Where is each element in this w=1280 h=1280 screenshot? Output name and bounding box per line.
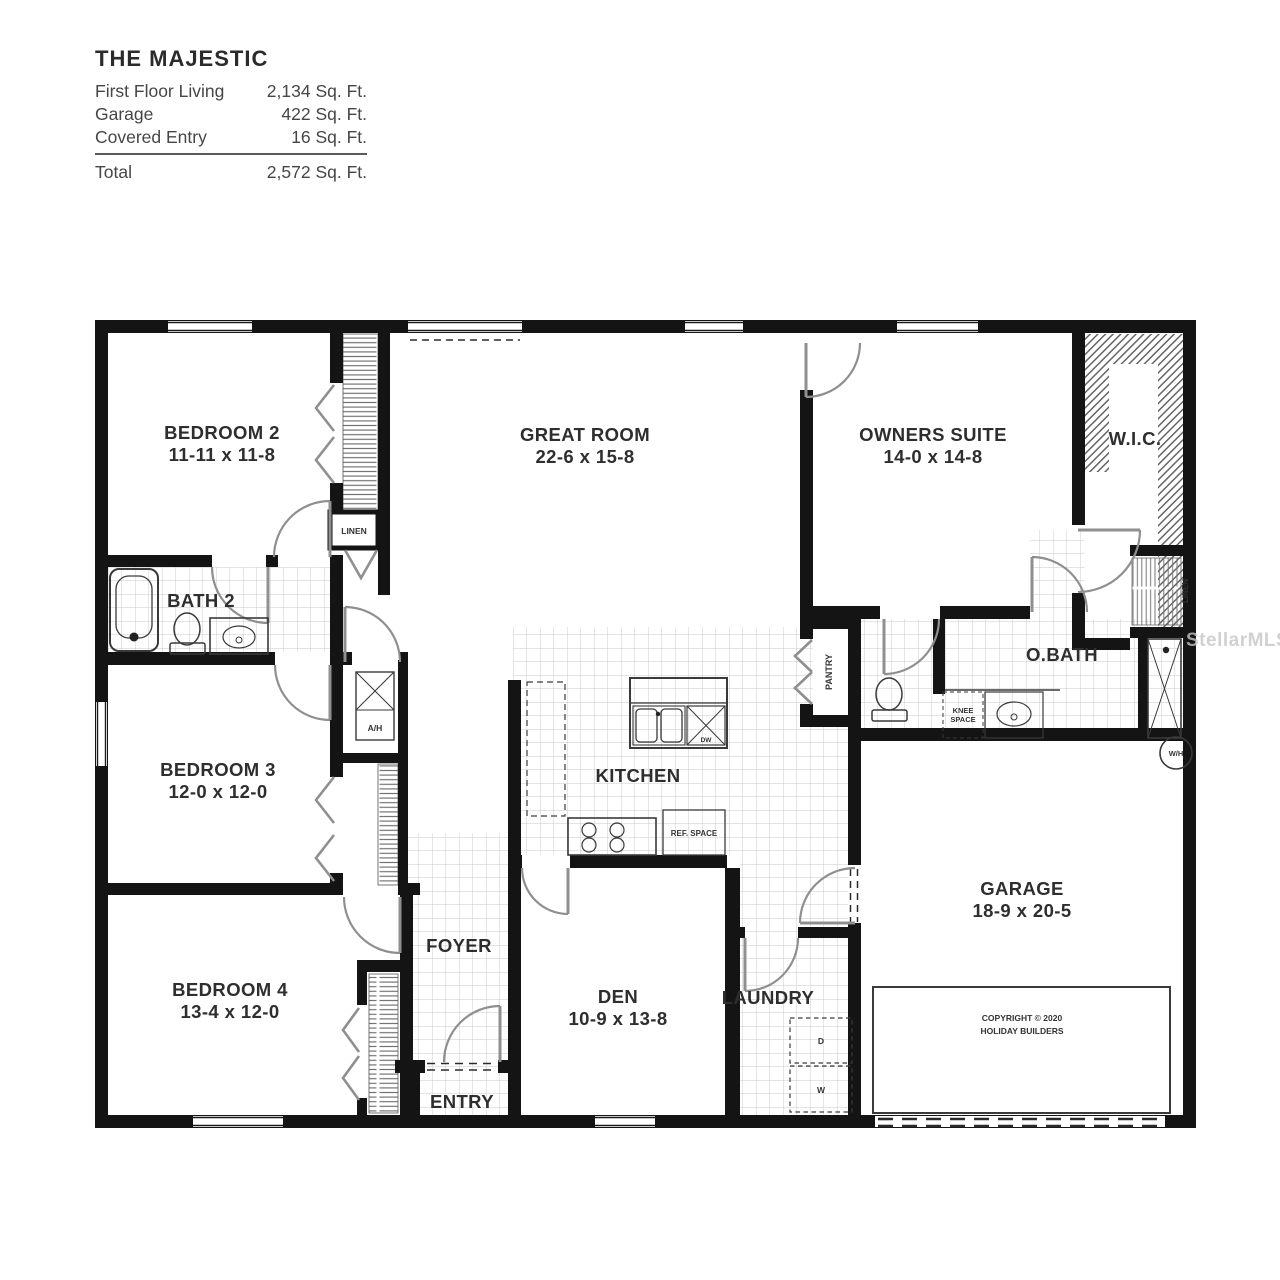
- linen-shelves: [1132, 558, 1181, 625]
- bedroom4-bifold: [343, 1008, 359, 1052]
- bedroom2-label: BEDROOM 2: [164, 422, 280, 443]
- knee-space-label: KNEE: [953, 706, 974, 715]
- foyer-label: FOYER: [426, 935, 492, 956]
- copyright-line2: HOLIDAY BUILDERS: [980, 1026, 1063, 1036]
- floor-plan: BEDROOM 2 11-11 x 11-8 GREAT ROOM 22-6 x…: [0, 0, 1280, 1280]
- entry-porch-edge: [420, 1123, 512, 1126]
- wic-shelf-left: [1085, 364, 1109, 472]
- bedroom4-closet: [369, 974, 398, 1113]
- window: [685, 321, 743, 332]
- great-room-dims: 22-6 x 15-8: [535, 446, 634, 467]
- kitchen-label: KITCHEN: [595, 765, 680, 786]
- bedroom2-closet: [343, 334, 378, 512]
- window: [96, 702, 107, 766]
- wic-shelf-top: [1085, 334, 1183, 364]
- den-door: [522, 868, 568, 914]
- ref-space-label: REF. SPACE: [671, 829, 718, 838]
- obath-label: O.BATH: [1026, 644, 1098, 665]
- bedroom4-label: BEDROOM 4: [172, 979, 288, 1000]
- owners-suite-dims: 14-0 x 14-8: [883, 446, 982, 467]
- bedroom4-door: [344, 897, 400, 953]
- window: [897, 321, 978, 332]
- garage-dims: 18-9 x 20-5: [972, 900, 1071, 921]
- bedroom2-dims: 11-11 x 11-8: [169, 444, 276, 465]
- bedroom2-bifold: [316, 437, 334, 483]
- knee-space-label: SPACE: [950, 715, 975, 724]
- owners-suite-label: OWNERS SUITE: [859, 424, 1007, 445]
- entry-label: ENTRY: [430, 1091, 494, 1112]
- great-room-label: GREAT ROOM: [520, 424, 650, 445]
- bedroom3-closet: [378, 764, 398, 885]
- watermark: StellarMLS: [1186, 630, 1280, 651]
- bedroom3-dims: 12-0 x 12-0: [168, 781, 267, 802]
- bedroom2-bifold: [316, 385, 334, 431]
- owners-suite-door: [806, 343, 860, 397]
- bath2-label: BATH 2: [167, 590, 235, 611]
- laundry-label: LAUNDRY: [722, 987, 815, 1008]
- bedroom4-bifold: [343, 1056, 359, 1100]
- washer-label: W: [817, 1085, 826, 1095]
- pantry-label: PANTRY: [824, 654, 834, 690]
- bedroom3-label: BEDROOM 3: [160, 759, 276, 780]
- window: [193, 1116, 283, 1127]
- linen-right-label: LINEN: [1181, 579, 1190, 603]
- linen-label: LINEN: [341, 526, 367, 536]
- garage-door: [875, 1116, 1165, 1127]
- garage-hall-door-dashed: [851, 869, 858, 922]
- bedroom2-door: [274, 501, 330, 557]
- ah-label: A/H: [368, 723, 383, 733]
- room-labels: BEDROOM 2 11-11 x 11-8 GREAT ROOM 22-6 x…: [160, 422, 1161, 1112]
- wic-label: W.I.C.: [1109, 428, 1162, 449]
- bedroom3-bifold: [316, 777, 334, 823]
- dw-label: DW: [701, 737, 713, 744]
- den-label: DEN: [598, 986, 638, 1007]
- dryer-label: D: [818, 1036, 824, 1046]
- copyright-line1: COPYRIGHT © 2020: [982, 1013, 1063, 1023]
- den-dims: 10-9 x 13-8: [568, 1008, 667, 1029]
- wic-door: [1078, 530, 1140, 592]
- window: [595, 1116, 655, 1127]
- garage-apron: [873, 987, 1170, 1113]
- ah-closet-door: [345, 607, 400, 662]
- window: [168, 321, 252, 332]
- bedroom4-dims: 13-4 x 12-0: [180, 1001, 279, 1022]
- window-slider: [408, 321, 522, 340]
- linen-bifold: [345, 550, 377, 578]
- wh-label: W/H: [1169, 749, 1184, 758]
- bedroom3-door: [275, 665, 330, 720]
- garage-label: GARAGE: [980, 878, 1064, 899]
